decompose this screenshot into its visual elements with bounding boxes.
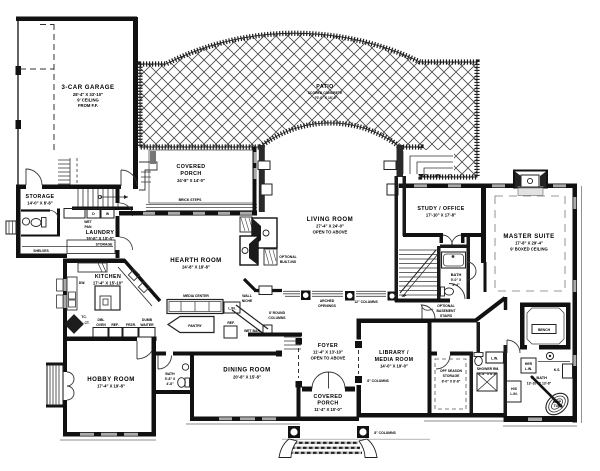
- svg-text:17'-10" X 17'-8": 17'-10" X 17'-8": [426, 213, 456, 218]
- svg-text:FOYER: FOYER: [318, 343, 338, 349]
- svg-text:STUDY / OFFICE: STUDY / OFFICE: [417, 206, 464, 212]
- svg-text:MASTER SUITE: MASTER SUITE: [503, 233, 554, 240]
- svg-text:WET: WET: [84, 220, 92, 224]
- svg-text:SHOWER RM.: SHOWER RM.: [477, 367, 499, 371]
- svg-text:BATH: BATH: [165, 372, 175, 376]
- svg-text:COLUMNS: COLUMNS: [268, 316, 286, 320]
- svg-text:24'-8" X 18'-8": 24'-8" X 18'-8": [182, 265, 210, 270]
- svg-text:K.S.: K.S.: [554, 368, 561, 372]
- svg-text:UP: UP: [402, 294, 407, 298]
- svg-text:OPEN TO ABOVE: OPEN TO ABOVE: [311, 356, 346, 361]
- svg-text:BUILT-INS: BUILT-INS: [280, 260, 297, 264]
- svg-text:PORCH: PORCH: [317, 401, 338, 407]
- svg-text:OFF SEASON: OFF SEASON: [440, 369, 463, 373]
- svg-text:27'-4" X 24'-0": 27'-4" X 24'-0": [316, 224, 344, 229]
- svg-text:BASEMENT: BASEMENT: [436, 309, 456, 313]
- svg-text:L.IN.: L.IN.: [491, 357, 498, 361]
- svg-text:12" COLUMNS: 12" COLUMNS: [354, 300, 378, 304]
- svg-text:CT.: CT.: [84, 321, 89, 325]
- svg-text:28'-4" X 33'-10": 28'-4" X 33'-10": [73, 92, 103, 97]
- svg-text:PANTRY: PANTRY: [188, 324, 202, 328]
- svg-text:4'-8": 4'-8": [166, 382, 174, 386]
- svg-text:8" COLUMNS: 8" COLUMNS: [367, 379, 389, 383]
- svg-text:9' BOXED CEILING: 9' BOXED CEILING: [510, 247, 548, 252]
- svg-text:WAITER: WAITER: [140, 323, 154, 327]
- svg-text:STAIRS: STAIRS: [440, 314, 453, 318]
- svg-text:8" COLUMNS: 8" COLUMNS: [374, 431, 396, 435]
- svg-text:~70'-0" X 16'-0": ~70'-0" X 16'-0": [313, 96, 338, 100]
- svg-text:8'-0" X 8'-8": 8'-0" X 8'-8": [442, 380, 461, 384]
- svg-text:COVERED: COVERED: [314, 394, 343, 400]
- svg-text:DUMB: DUMB: [142, 318, 153, 322]
- svg-text:DW.: DW.: [79, 281, 85, 285]
- svg-text:TUB: TUB: [554, 404, 561, 408]
- svg-text:L.IN.: L.IN.: [510, 392, 517, 396]
- svg-text:OPTIONAL: OPTIONAL: [437, 304, 455, 308]
- svg-text:DBL: DBL: [98, 318, 105, 322]
- svg-text:COVERED: COVERED: [177, 164, 206, 170]
- svg-text:20'-8" X 15'-8": 20'-8" X 15'-8": [233, 375, 261, 380]
- svg-text:KITCHEN: KITCHEN: [95, 274, 121, 280]
- svg-text:REF.: REF.: [111, 323, 118, 327]
- svg-text:BRICK STEPS: BRICK STEPS: [179, 198, 203, 202]
- svg-text:TC.: TC.: [81, 315, 87, 319]
- svg-text:24'-8" X 14'-0": 24'-8" X 14'-0": [177, 178, 205, 183]
- svg-text:3-CAR GARAGE: 3-CAR GARAGE: [61, 84, 114, 91]
- svg-text:SCORED CONCRETE: SCORED CONCRETE: [308, 91, 343, 95]
- svg-text:11'-4" X 13'-10": 11'-4" X 13'-10": [313, 350, 343, 355]
- svg-text:L.IN.: L.IN.: [525, 367, 532, 371]
- svg-text:STORAGE: STORAGE: [26, 194, 55, 200]
- svg-text:STORAGE: STORAGE: [443, 374, 460, 378]
- svg-text:5'-8" X: 5'-8" X: [165, 377, 176, 381]
- svg-text:LIBRARY /: LIBRARY /: [379, 350, 409, 356]
- svg-text:OPEN TO ABOVE: OPEN TO ABOVE: [313, 230, 348, 235]
- svg-text:5'-0" X: 5'-0" X: [451, 278, 462, 282]
- svg-text:PORCH: PORCH: [180, 171, 201, 177]
- svg-text:MEDIA ROOM: MEDIA ROOM: [375, 357, 414, 363]
- svg-text:9' CEILING: 9' CEILING: [77, 98, 98, 103]
- svg-text:W: W: [106, 212, 110, 216]
- svg-text:PAN: PAN: [85, 225, 92, 229]
- svg-text:LIVING ROOM: LIVING ROOM: [307, 216, 353, 223]
- svg-text:11'-4" X 10'-0": 11'-4" X 10'-0": [314, 407, 342, 412]
- svg-text:HER: HER: [525, 362, 533, 366]
- svg-text:HEARTH ROOM: HEARTH ROOM: [170, 257, 222, 264]
- svg-text:PATIO: PATIO: [316, 84, 333, 90]
- svg-text:WALL: WALL: [242, 294, 252, 298]
- svg-text:WET BAR: WET BAR: [244, 329, 260, 333]
- svg-text:STORAGE: STORAGE: [96, 243, 113, 247]
- svg-text:8' ROUND: 8' ROUND: [269, 311, 286, 315]
- svg-text:BATH: BATH: [451, 272, 462, 277]
- svg-text:17'-4" X 19'-8": 17'-4" X 19'-8": [97, 384, 125, 389]
- svg-text:17'-8" X 29'-4": 17'-8" X 29'-4": [515, 241, 543, 246]
- svg-text:NICHE: NICHE: [242, 299, 253, 303]
- svg-text:D: D: [92, 212, 95, 216]
- svg-text:HIS: HIS: [511, 387, 517, 391]
- svg-text:17'-4" X 15'-10": 17'-4" X 15'-10": [93, 281, 123, 286]
- svg-text:BRICK STEPS: BRICK STEPS: [419, 174, 443, 178]
- svg-text:14'-0" X 8'-8": 14'-0" X 8'-8": [27, 201, 53, 206]
- svg-text:OPTIONAL: OPTIONAL: [279, 255, 297, 259]
- svg-text:14'-0" X 19'-0": 14'-0" X 19'-0": [380, 364, 408, 369]
- svg-text:DINING ROOM: DINING ROOM: [223, 367, 270, 374]
- svg-text:BENCH: BENCH: [538, 328, 551, 332]
- svg-text:REF.: REF.: [227, 321, 234, 325]
- svg-text:HOBBY ROOM: HOBBY ROOM: [87, 376, 135, 383]
- svg-text:OPENINGS: OPENINGS: [318, 304, 337, 308]
- svg-text:FRZR.: FRZR.: [126, 323, 136, 327]
- svg-text:L.IN.: L.IN.: [228, 307, 235, 311]
- svg-text:FROM F.F.: FROM F.F.: [78, 103, 98, 108]
- svg-text:OVEN: OVEN: [96, 323, 106, 327]
- svg-text:MEDIA CENTER: MEDIA CENTER: [183, 294, 209, 298]
- svg-text:ARCHED: ARCHED: [320, 299, 335, 303]
- svg-text:SHELVES: SHELVES: [33, 249, 49, 253]
